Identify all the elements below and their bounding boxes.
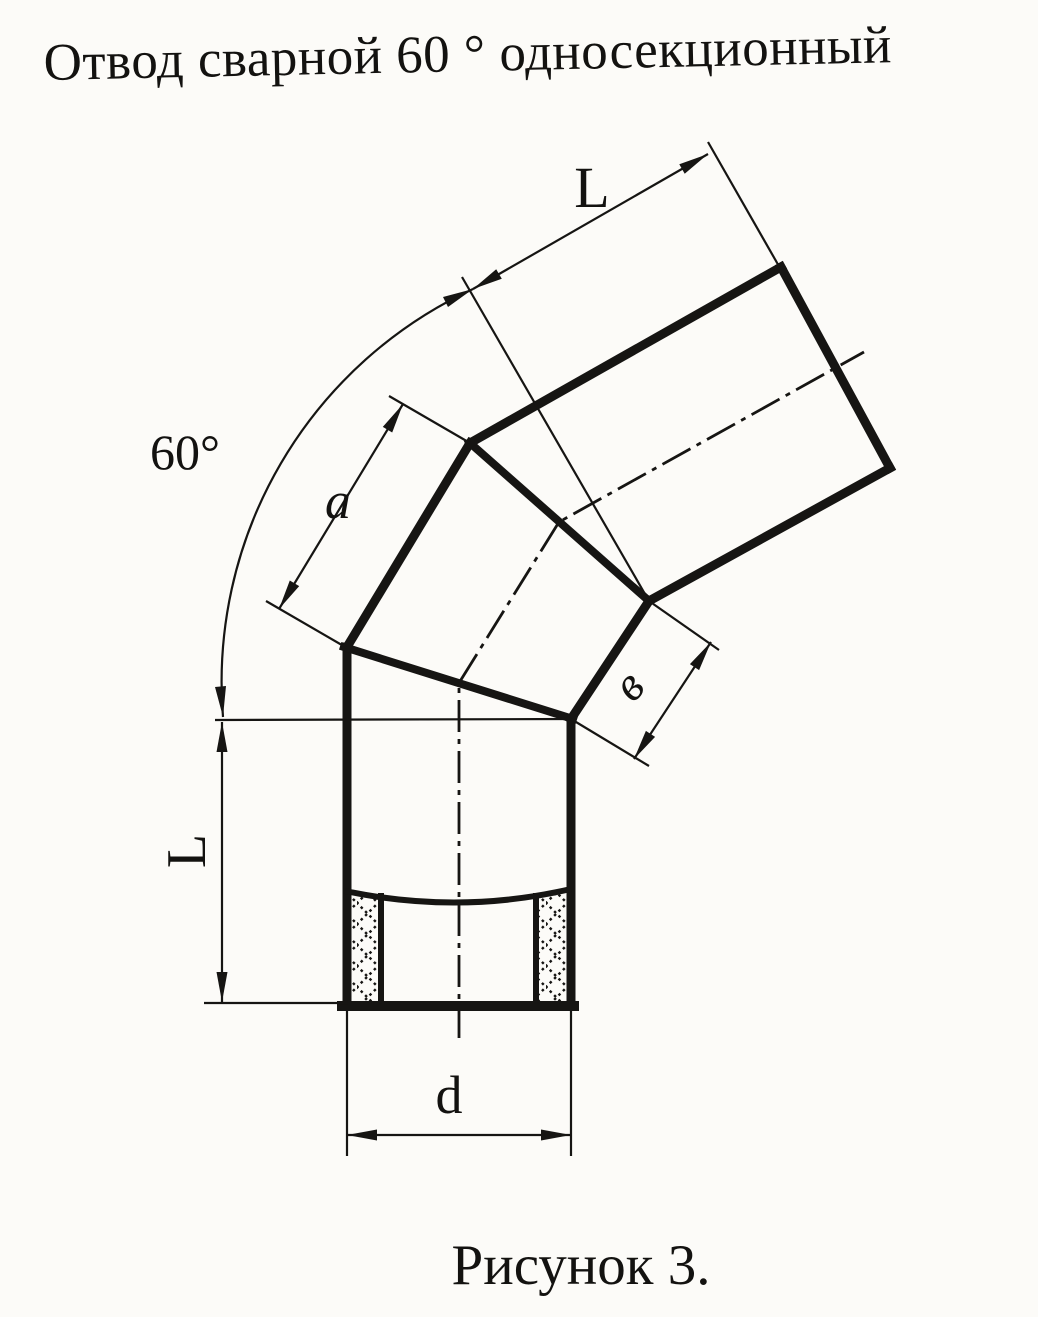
weld-hatch-right (538, 892, 568, 1004)
reference-line-horizontal (215, 719, 571, 720)
arrow-arc-top (443, 289, 473, 307)
angle-label-60: 60° (150, 424, 220, 480)
elbow-technical-drawing: Отвод сварной 60 ° односекционный (0, 0, 1038, 1317)
weld-joint-line-2 (470, 443, 649, 601)
weld-hatch-left (350, 892, 379, 1004)
arrow-b-upper (690, 642, 711, 670)
arrow-a-upper (383, 404, 403, 433)
scanned-drawing-page: Отвод сварной 60 ° односекционный (0, 0, 1038, 1317)
arrow-L-top-left (473, 269, 502, 289)
drawing-title: Отвод сварной 60 ° односекционный (43, 16, 892, 92)
dim-label-d: d (436, 1065, 463, 1125)
arrow-d-left (347, 1130, 377, 1141)
dim-label-b: в (602, 660, 655, 711)
extension-line-a-upper (389, 396, 470, 443)
extension-line-b-lower (571, 719, 649, 766)
pipe-end-face (781, 267, 890, 468)
arrow-L-left-bottom (217, 972, 228, 1002)
dim-label-L-left: L (156, 834, 218, 868)
arrow-L-top-right (679, 154, 708, 174)
pipe-outline (342, 267, 890, 1006)
arrow-d-right (541, 1130, 571, 1141)
dimension-arrows (215, 154, 711, 1141)
dim-label-a: a (325, 473, 351, 530)
extension-line-L-top-left (462, 277, 649, 601)
dim-label-L-top: L (574, 155, 609, 220)
extension-line-b-upper (649, 601, 719, 650)
arrow-L-left-top (217, 722, 228, 752)
arrow-a-lower (279, 581, 299, 610)
arrow-b-lower (634, 731, 655, 759)
extension-line-a-lower (266, 601, 347, 648)
arrow-arc-bottom (215, 686, 226, 717)
extension-line-L-top-right (708, 142, 780, 268)
figure-caption: Рисунок 3. (452, 1234, 711, 1297)
pipe-centerline (459, 352, 864, 1038)
